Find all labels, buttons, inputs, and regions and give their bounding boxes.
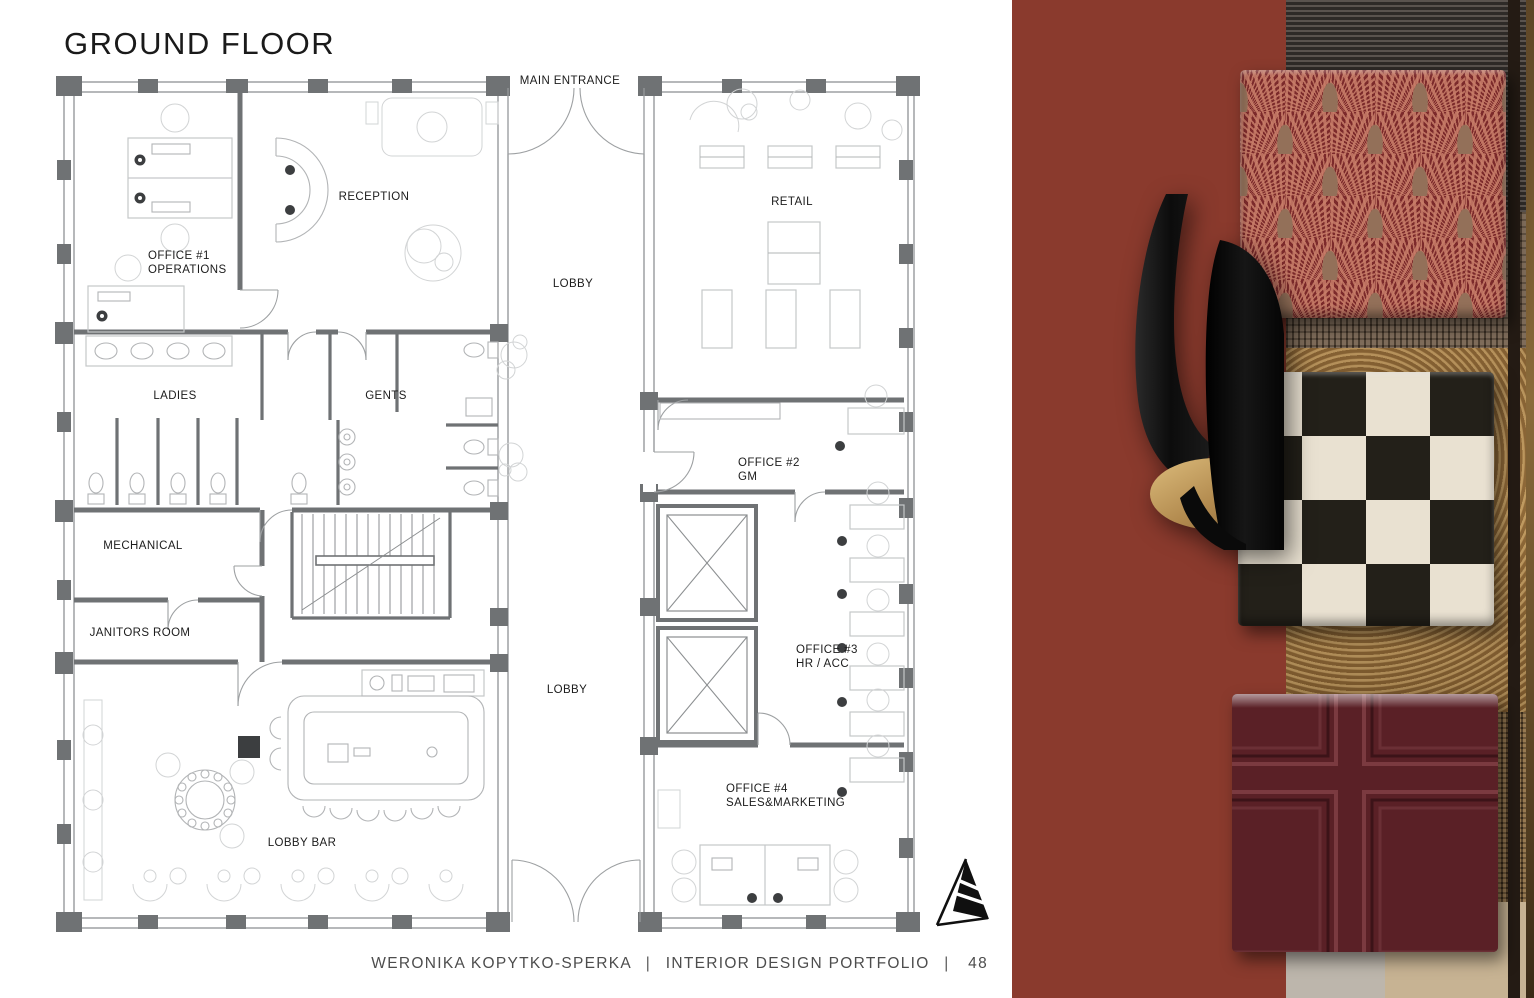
room-label-office-1-sub: OPERATIONS: [148, 264, 227, 276]
room-label-office-4: OFFICE #4: [726, 783, 788, 795]
room-label-main-entrance: MAIN ENTRANCE: [520, 75, 620, 87]
room-label-gents: GENTS: [365, 390, 407, 402]
room-label-office-2: OFFICE #2: [738, 457, 800, 469]
room-label-office-1: OFFICE #1: [148, 250, 210, 262]
floor-plan-page: GROUND FLOOR: [0, 0, 1012, 998]
room-label-lobby-bar: LOBBY BAR: [268, 837, 337, 849]
designer-logo-icon: [930, 854, 998, 934]
room-label-lobby-lower: LOBBY: [547, 684, 587, 696]
footer-page-number: 48: [968, 955, 988, 972]
black-gold-wall-sconce: [1128, 194, 1306, 550]
room-label-office-2-sub: GM: [738, 471, 757, 483]
room-label-janitors-room: JANITORS ROOM: [90, 627, 191, 639]
room-label-ladies: LADIES: [153, 390, 196, 402]
room-label-office-4-sub: SALES&MARKETING: [726, 797, 845, 809]
material-board-panel: [1012, 0, 1534, 998]
footer-separator-1: |: [646, 955, 651, 972]
footer-credit: WERONIKA KOPYTKO-SPERKA | INTERIOR DESIG…: [0, 955, 988, 973]
footer-separator-2: |: [944, 955, 949, 972]
room-label-reception: RECEPTION: [339, 191, 410, 203]
coffer-grid: [1232, 694, 1498, 952]
room-label-mechanical: MECHANICAL: [103, 540, 183, 552]
burgundy-coffered-panel-swatch: [1232, 694, 1498, 952]
room-label-lobby-upper: LOBBY: [553, 278, 593, 290]
floor-plan-svg: MAIN ENTRANCE RECEPTION OFFICE #1 OPERAT…: [0, 0, 1012, 998]
room-label-office-3-sub: HR / ACC: [796, 658, 849, 670]
footer-portfolio: INTERIOR DESIGN PORTFOLIO: [666, 955, 930, 972]
page-title: GROUND FLOOR: [64, 26, 335, 62]
footer-author: WERONIKA KOPYTKO-SPERKA: [371, 955, 631, 972]
room-label-retail: RETAIL: [771, 196, 813, 208]
room-label-office-3: OFFICE #3: [796, 644, 858, 656]
portfolio-page: GROUND FLOOR: [0, 0, 1534, 998]
